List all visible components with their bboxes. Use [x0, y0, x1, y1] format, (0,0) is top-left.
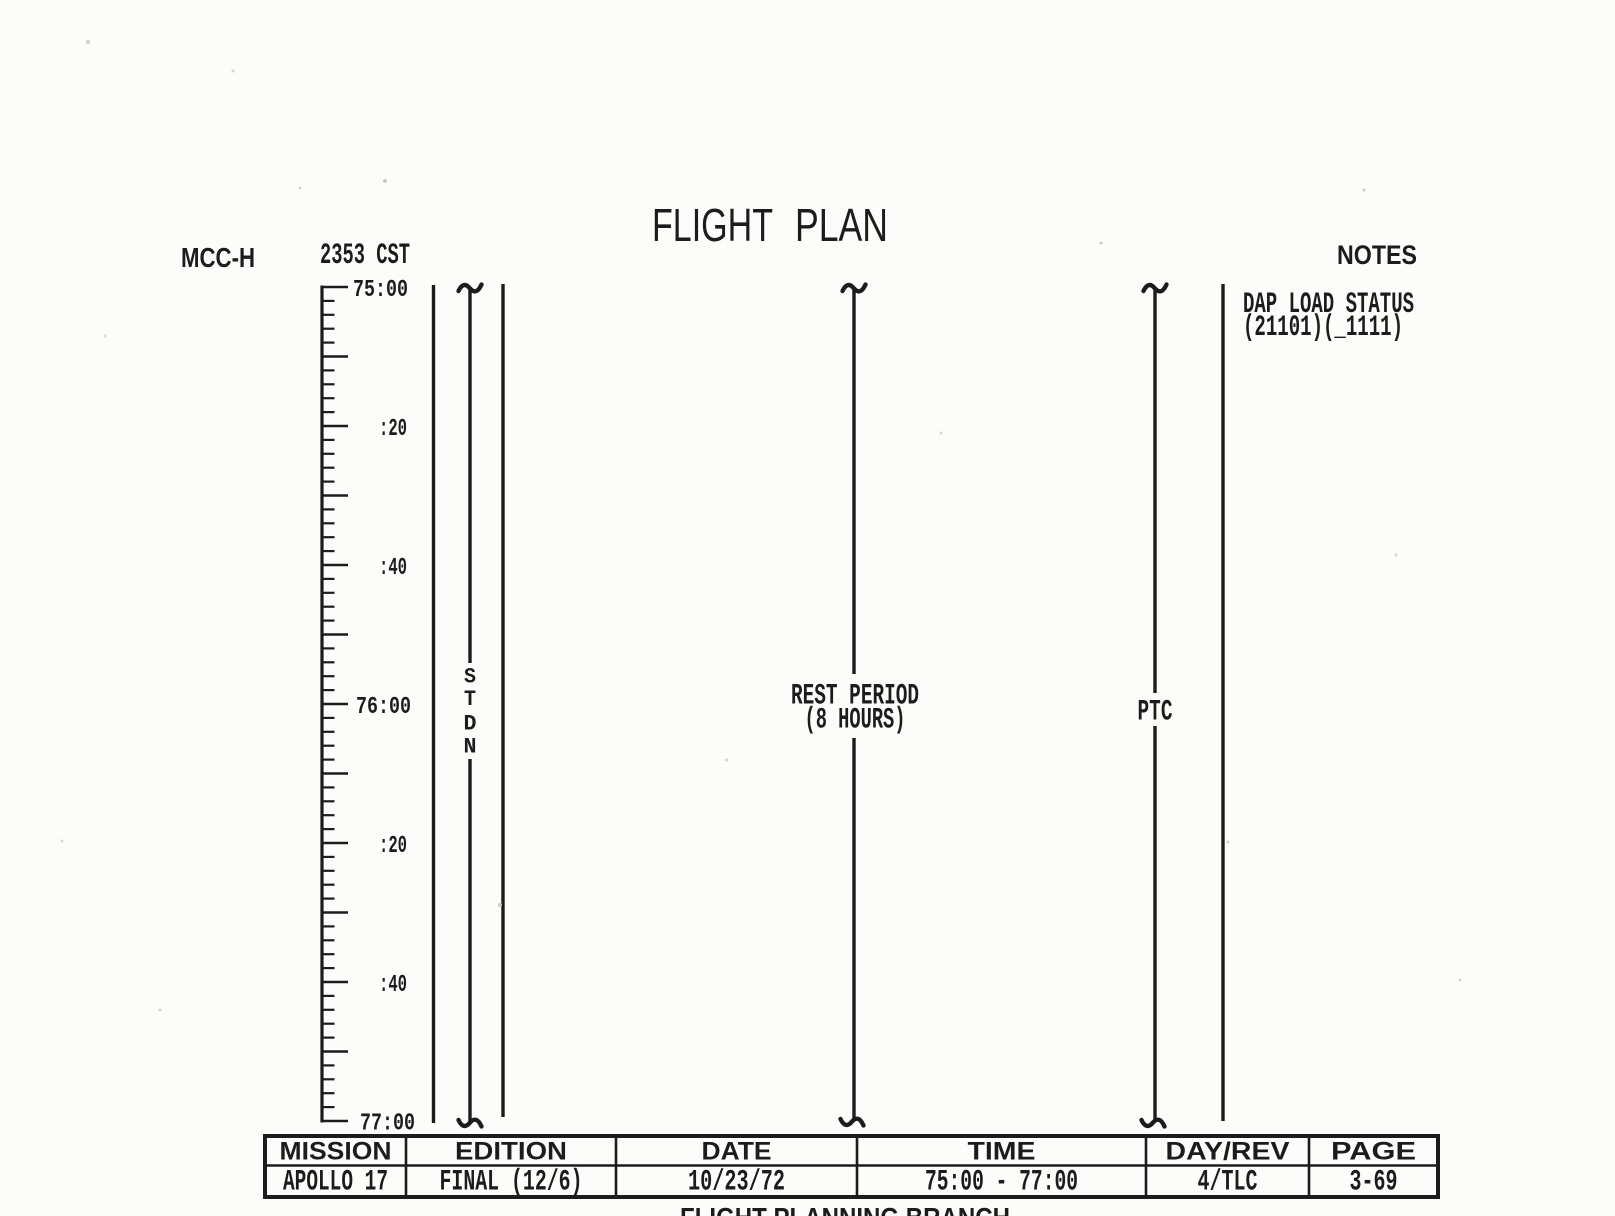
svg-text::40: :40	[379, 972, 407, 999]
svg-text:(21101)(_1111): (21101)(_1111)	[1243, 311, 1403, 345]
svg-text:DATE: DATE	[702, 1138, 772, 1166]
svg-text:D: D	[464, 712, 477, 737]
svg-text:FLIGHT PLANNING BRANCH: FLIGHT PLANNING BRANCH	[680, 1202, 1010, 1216]
svg-text:76:00: 76:00	[356, 694, 411, 721]
svg-text:PTC: PTC	[1138, 696, 1173, 730]
svg-text:4/TLC: 4/TLC	[1198, 1166, 1258, 1200]
svg-text::20: :20	[379, 833, 407, 860]
svg-text:75:00: 75:00	[353, 277, 408, 304]
svg-text:TIME: TIME	[968, 1138, 1036, 1166]
svg-text:75:00 - 77:00: 75:00 - 77:00	[925, 1166, 1078, 1200]
svg-text::20: :20	[379, 416, 407, 443]
svg-text:PLAN: PLAN	[795, 199, 888, 251]
svg-text:MISSION: MISSION	[280, 1138, 392, 1166]
svg-text:EDITION: EDITION	[455, 1138, 567, 1166]
svg-text:NOTES: NOTES	[1337, 240, 1417, 270]
svg-text:FINAL (12/6): FINAL (12/6)	[440, 1166, 583, 1200]
svg-text:MCC-H: MCC-H	[181, 242, 255, 273]
svg-text:APOLLO 17: APOLLO 17	[283, 1166, 388, 1200]
svg-text:N: N	[464, 735, 477, 760]
svg-text:DAY/REV: DAY/REV	[1166, 1138, 1290, 1166]
svg-text:PAGE: PAGE	[1331, 1138, 1416, 1166]
svg-text:2353 CST: 2353 CST	[320, 239, 410, 273]
svg-text:T: T	[464, 687, 476, 712]
svg-text:3-69: 3-69	[1350, 1166, 1398, 1200]
svg-text:(8 HOURS): (8 HOURS)	[805, 704, 906, 738]
svg-text:77:00: 77:00	[360, 1111, 415, 1138]
svg-text:10/23/72: 10/23/72	[688, 1166, 785, 1200]
svg-text:FLIGHT: FLIGHT	[652, 199, 773, 251]
svg-text::40: :40	[379, 555, 407, 582]
svg-text:S: S	[464, 665, 476, 690]
